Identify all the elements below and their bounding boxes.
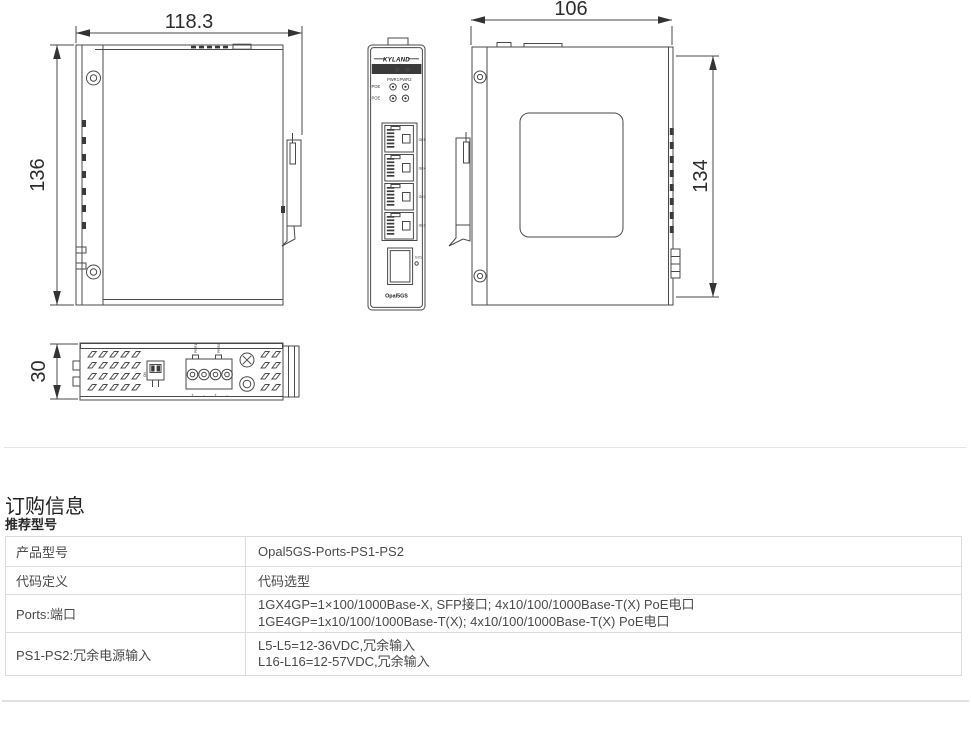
row-value-code-definition: 代码选型: [246, 567, 962, 595]
subsection-title: 推荐型号: [5, 514, 57, 533]
dim-label-134: 134: [690, 159, 712, 192]
power-option-line: L16-L16=12-57VDC,冗余输入: [258, 654, 953, 671]
table-row: PS1-PS2:冗余电源输入 L5-L5=12-36VDC,冗余输入 L16-L…: [6, 633, 962, 676]
led-label-pwr2: PWR2: [399, 77, 412, 82]
led-band: [372, 64, 422, 74]
din-rail-clip: [449, 132, 470, 246]
left-view-drawing: 118.3 136: [27, 11, 302, 305]
side-view-drawing: 106 134: [449, 0, 719, 305]
bottom-divider: [2, 700, 969, 702]
section-divider: [4, 447, 966, 448]
led-label-pwr1: PWR1: [387, 77, 400, 82]
dim-label-118-3: 118.3: [165, 11, 214, 33]
dim-label-136: 136: [27, 158, 49, 191]
left-view-height-dimension: 136: [27, 45, 74, 305]
left-view-body: [76, 44, 301, 305]
side-view-width-dimension: 106: [471, 0, 672, 45]
side-view-body: [449, 43, 680, 306]
row-label-product-model: 产品型号: [6, 537, 246, 567]
row-value-power-input: L5-L5=12-36VDC,冗余输入 L16-L16=12-57VDC,冗余输…: [246, 633, 962, 676]
din-rail-clip: [282, 133, 301, 246]
port-label-ge5: GE5: [419, 138, 426, 142]
port-label-ge3: GE3: [419, 195, 426, 199]
brand-label: KYLAND: [383, 56, 410, 63]
led-label-poe1: POE: [372, 84, 381, 89]
side-view-height-dimension: 134: [676, 56, 719, 297]
technical-drawings: 118.3 136: [0, 0, 971, 452]
ordering-info-table: 产品型号 Opal5GS-Ports-PS1-PS2 代码定义 代码选型 Por…: [5, 536, 962, 676]
row-label-code-definition: 代码定义: [6, 567, 246, 595]
model-label: Opal5GS: [385, 294, 408, 300]
power-option-line: L5-L5=12-36VDC,冗余输入: [258, 638, 953, 655]
row-label-ports: Ports:端口: [6, 595, 246, 633]
bottom-view-body: ON PWR1 PWR2 + - + -: [73, 343, 299, 400]
ports-option-line: 1GX4GP=1×100/1000Base-X, SFP接口; 4x10/100…: [258, 597, 953, 614]
table-row: Ports:端口 1GX4GP=1×100/1000Base-X, SFP接口;…: [6, 595, 962, 633]
led-label-poe2: POE: [372, 96, 381, 101]
port-label-ge2: GE2: [419, 224, 426, 228]
front-view-drawing: KYLAND PWR1 PWR2 POE POE: [368, 38, 426, 310]
table-row: 产品型号 Opal5GS-Ports-PS1-PS2: [6, 537, 962, 567]
terminal-block-side: [671, 249, 680, 278]
row-label-power-input: PS1-PS2:冗余电源输入: [6, 633, 246, 676]
ports-option-line: 1GE4GP=1x10/100/1000Base-T(X); 4x10/100/…: [258, 614, 953, 631]
terminal-label-pwr2: PWR2: [217, 344, 221, 353]
row-value-ports: 1GX4GP=1×100/1000Base-X, SFP接口; 4x10/100…: [246, 595, 962, 633]
bottom-view-height-dimension: 30: [28, 344, 78, 399]
terminal-label-pwr1: PWR1: [194, 344, 198, 353]
dim-label-30: 30: [28, 360, 50, 382]
bottom-view-drawing: 30: [28, 343, 299, 400]
port-label-ge4: GE4: [419, 167, 426, 171]
row-value-product-model: Opal5GS-Ports-PS1-PS2: [246, 537, 962, 567]
dim-label-106: 106: [554, 0, 587, 20]
table-row: 代码定义 代码选型: [6, 567, 962, 595]
dip-switch-label: ON: [143, 372, 147, 377]
port-label-gx1: GX1: [415, 256, 422, 260]
